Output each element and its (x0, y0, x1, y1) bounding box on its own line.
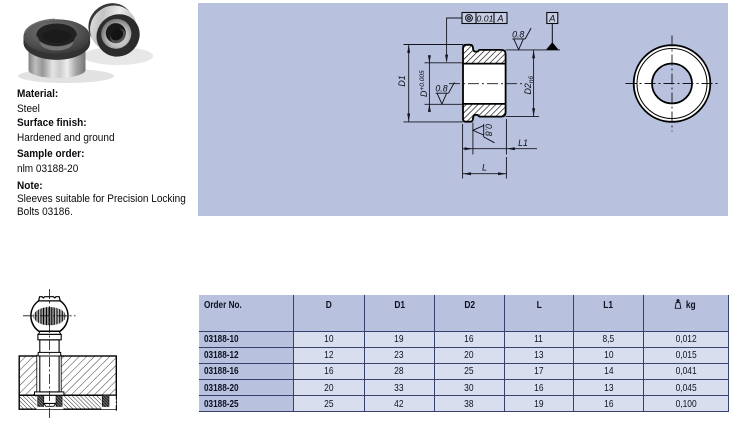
svg-text:A: A (496, 14, 503, 24)
svg-text:0.8: 0.8 (435, 84, 447, 94)
svg-text:D1: D1 (397, 75, 407, 86)
svg-text:A: A (548, 14, 555, 24)
svg-text:L1: L1 (518, 138, 528, 148)
svg-text:0.01: 0.01 (477, 13, 494, 23)
svg-text:0.8: 0.8 (512, 29, 524, 39)
svg-text:L: L (482, 163, 487, 173)
svg-text:0.8: 0.8 (483, 124, 493, 136)
